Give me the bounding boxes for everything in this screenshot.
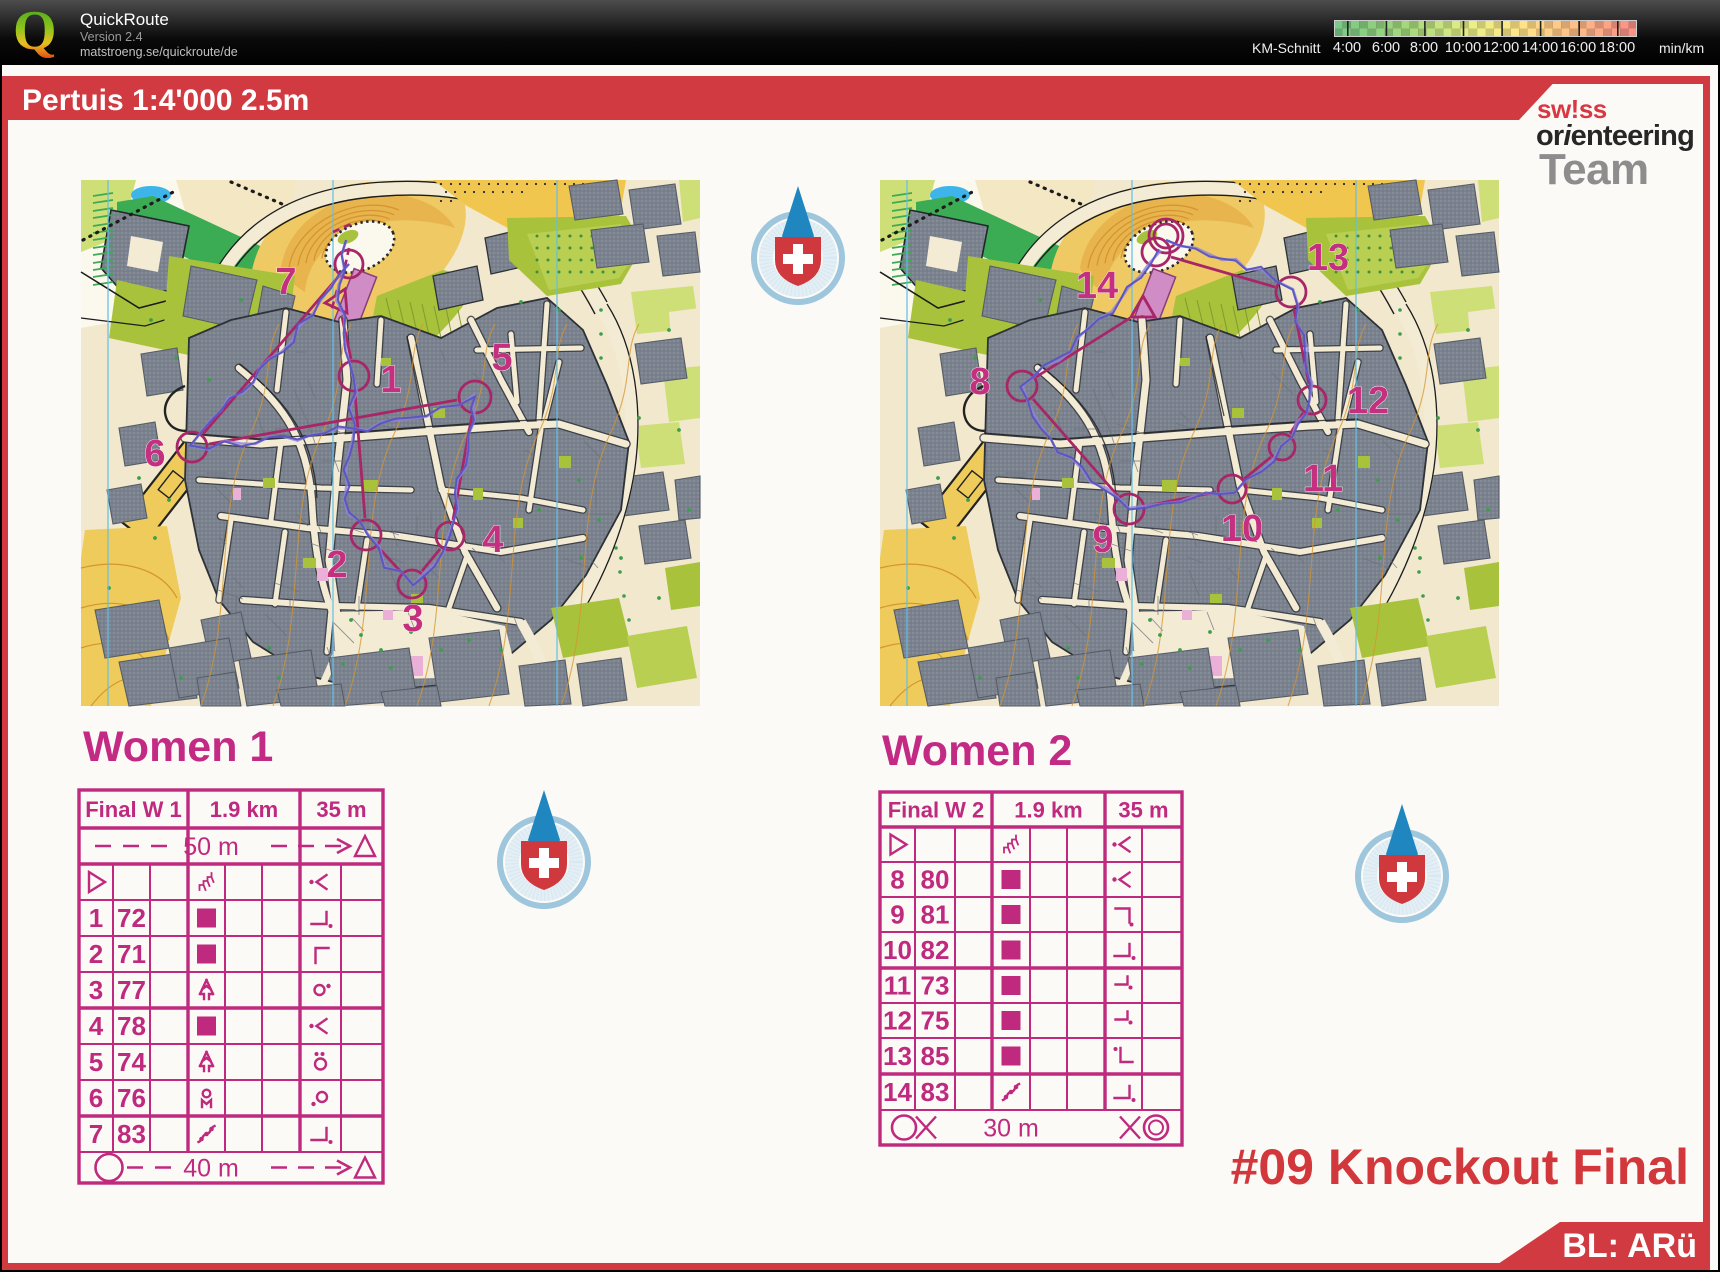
svg-text:76: 76	[117, 1083, 146, 1113]
svg-text:30 m: 30 m	[983, 1115, 1039, 1143]
svg-text:3: 3	[89, 975, 103, 1005]
svg-text:Final W 1: Final W 1	[85, 797, 182, 822]
svg-text:2: 2	[89, 939, 103, 969]
svg-text:83: 83	[117, 1119, 146, 1149]
svg-text:8: 8	[969, 361, 990, 403]
svg-text:1: 1	[380, 359, 401, 401]
svg-text:78: 78	[117, 1011, 146, 1041]
svg-text:12: 12	[1347, 380, 1389, 422]
svg-text:73: 73	[921, 971, 950, 1001]
svg-text:72: 72	[117, 903, 146, 933]
svg-text:83: 83	[921, 1077, 950, 1107]
svg-text:6: 6	[144, 433, 165, 475]
svg-text:1.9 km: 1.9 km	[1014, 798, 1083, 823]
svg-text:7: 7	[89, 1119, 103, 1149]
svg-text:1.9 km: 1.9 km	[210, 797, 279, 822]
svg-text:71: 71	[117, 939, 146, 969]
svg-text:4: 4	[89, 1011, 104, 1041]
svg-text:11: 11	[1303, 458, 1343, 500]
svg-text:5: 5	[491, 337, 512, 379]
svg-text:Pertuis 1:4'000 2.5m: Pertuis 1:4'000 2.5m	[22, 84, 309, 117]
svg-text:#09 Knockout Final: #09 Knockout Final	[1231, 1139, 1689, 1195]
svg-text:81: 81	[921, 900, 950, 930]
svg-text:13: 13	[1307, 237, 1349, 279]
svg-text:14: 14	[1076, 265, 1118, 307]
svg-text:80: 80	[921, 865, 950, 895]
svg-text:Q: Q	[13, 0, 57, 62]
svg-text:2: 2	[326, 544, 347, 586]
svg-text:9: 9	[1092, 519, 1113, 561]
svg-text:40 m: 40 m	[183, 1155, 239, 1183]
svg-text:12: 12	[883, 1006, 912, 1036]
svg-text:8: 8	[890, 865, 904, 895]
svg-text:11: 11	[884, 971, 912, 1001]
svg-text:3: 3	[402, 598, 423, 640]
svg-text:Women 2: Women 2	[882, 727, 1072, 775]
svg-text:BL: ARü: BL: ARü	[1562, 1227, 1697, 1265]
svg-text:Women 1: Women 1	[83, 723, 273, 771]
svg-text:74: 74	[117, 1047, 146, 1077]
svg-text:10: 10	[883, 935, 912, 965]
svg-text:5: 5	[89, 1047, 103, 1077]
svg-text:85: 85	[921, 1041, 950, 1071]
svg-text:75: 75	[921, 1006, 950, 1036]
svg-text:35 m: 35 m	[316, 797, 366, 822]
svg-text:82: 82	[921, 935, 950, 965]
svg-text:50 m: 50 m	[183, 833, 239, 861]
svg-text:7: 7	[275, 261, 296, 303]
svg-text:14: 14	[883, 1077, 912, 1107]
svg-text:13: 13	[883, 1041, 912, 1071]
svg-text:Final W 2: Final W 2	[888, 798, 985, 823]
svg-text:1: 1	[89, 903, 103, 933]
svg-text:6: 6	[89, 1083, 103, 1113]
svg-text:10: 10	[1221, 508, 1263, 550]
svg-text:77: 77	[117, 975, 146, 1005]
svg-text:35 m: 35 m	[1118, 798, 1168, 823]
svg-text:Team: Team	[1539, 145, 1649, 194]
svg-text:4: 4	[482, 519, 503, 561]
svg-text:9: 9	[890, 900, 904, 930]
